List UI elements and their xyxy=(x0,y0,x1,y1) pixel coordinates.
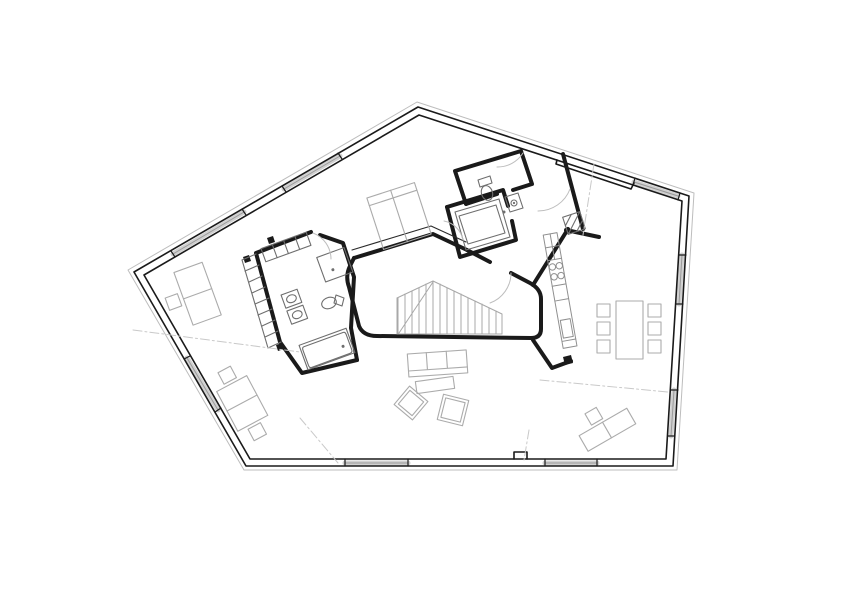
layer-staircase xyxy=(397,281,502,334)
layer-furniture xyxy=(165,183,661,452)
furniture xyxy=(597,322,610,335)
bath-fixture xyxy=(459,205,505,244)
kitchen-counter xyxy=(557,272,564,279)
bath-fixture xyxy=(478,176,492,187)
layer-window-band xyxy=(173,156,682,463)
bath-fixture xyxy=(281,289,302,308)
layer-door-swing xyxy=(313,153,570,303)
furniture xyxy=(441,398,465,422)
furniture xyxy=(597,304,610,317)
furniture xyxy=(603,422,612,438)
bath-fixture xyxy=(287,305,308,324)
staircase xyxy=(399,282,433,333)
window-glass-line xyxy=(284,156,340,189)
furniture xyxy=(227,395,257,411)
furniture xyxy=(248,423,266,441)
staircase xyxy=(398,281,496,334)
column xyxy=(267,236,275,244)
kitchen-counter xyxy=(560,319,573,338)
furniture xyxy=(218,366,236,384)
window-glass-line xyxy=(173,212,244,254)
window-glass-line xyxy=(634,182,678,196)
furniture xyxy=(407,350,467,377)
section-dash-line xyxy=(540,380,668,392)
fixture-drain-dot xyxy=(503,211,506,214)
furniture xyxy=(616,301,643,359)
layer-window-glass-line xyxy=(173,156,682,463)
section-dash-line xyxy=(133,330,300,352)
interior-wall xyxy=(354,234,467,258)
interior-wall xyxy=(447,207,516,257)
furniture xyxy=(648,304,661,317)
layer-interior-wall-finish-line xyxy=(352,226,466,250)
layer-column xyxy=(243,236,573,365)
fixture-drain-dot xyxy=(513,202,515,204)
interior-wall xyxy=(347,258,531,338)
kitchen-counter xyxy=(550,273,557,280)
bath-fixture xyxy=(291,309,303,320)
bath-fixture xyxy=(285,293,297,304)
window-glass-line xyxy=(187,358,218,410)
kitchen-counter xyxy=(549,263,556,270)
furniture xyxy=(648,340,661,353)
furniture xyxy=(648,322,661,335)
layer-kitchen-counter xyxy=(543,233,577,349)
furniture xyxy=(165,294,182,311)
kitchen-counter xyxy=(556,262,563,269)
section-dash-line xyxy=(300,418,338,463)
door-swing xyxy=(490,273,511,303)
interior-wall-finish-line xyxy=(352,226,466,250)
door-swing xyxy=(538,189,570,211)
fixture-drain-dot xyxy=(331,268,335,272)
fixture-drain-dot xyxy=(341,344,345,348)
furniture xyxy=(184,289,212,299)
interior-wall xyxy=(256,232,357,373)
furniture xyxy=(597,340,610,353)
furniture xyxy=(415,376,454,393)
floor-plan-page xyxy=(0,0,842,595)
floor-plan-svg xyxy=(0,0,842,595)
furniture xyxy=(437,394,469,426)
furniture xyxy=(585,407,603,425)
staircase xyxy=(397,281,502,334)
